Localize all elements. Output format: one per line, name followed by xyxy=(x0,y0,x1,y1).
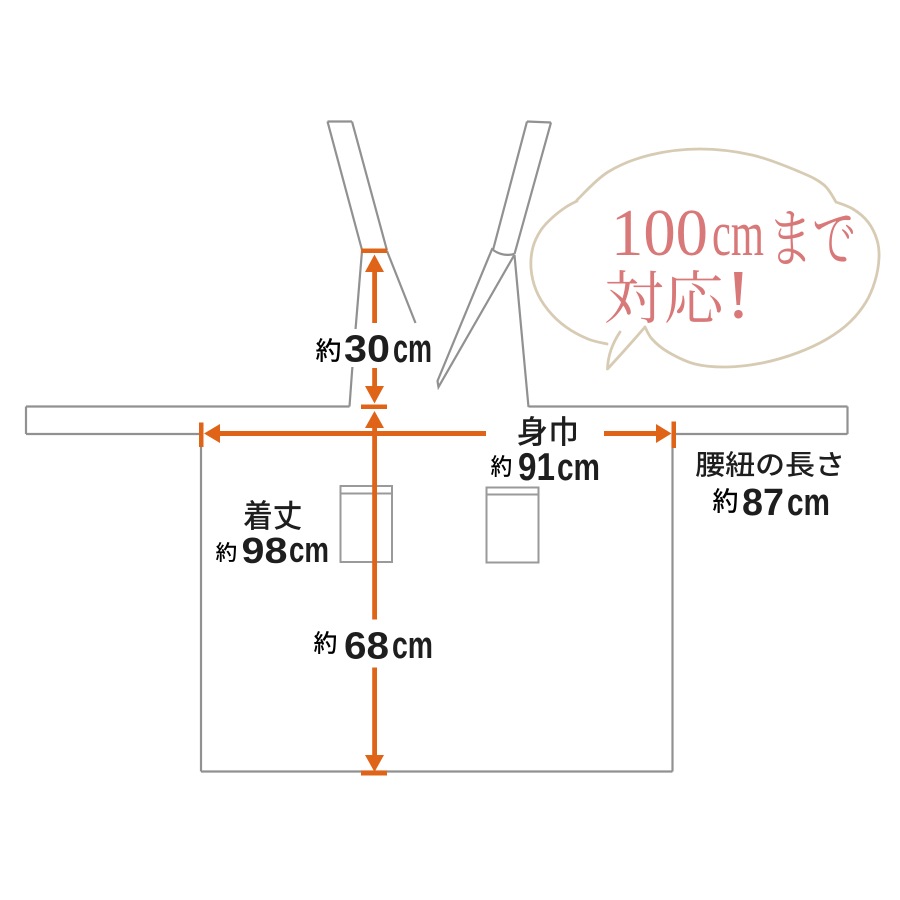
svg-text:98: 98 xyxy=(242,530,288,571)
svg-text:cm: cm xyxy=(712,198,764,270)
svg-text:87: 87 xyxy=(742,482,784,524)
svg-text:91: 91 xyxy=(518,446,555,489)
svg-text:cm: cm xyxy=(289,529,329,570)
svg-text:cm: cm xyxy=(557,447,600,489)
svg-text:30: 30 xyxy=(344,329,390,371)
svg-text:cm: cm xyxy=(787,482,830,524)
svg-text:cm: cm xyxy=(393,327,432,371)
svg-text:cm: cm xyxy=(392,625,433,667)
svg-text:68: 68 xyxy=(344,626,389,668)
svg-text:100: 100 xyxy=(611,196,708,270)
